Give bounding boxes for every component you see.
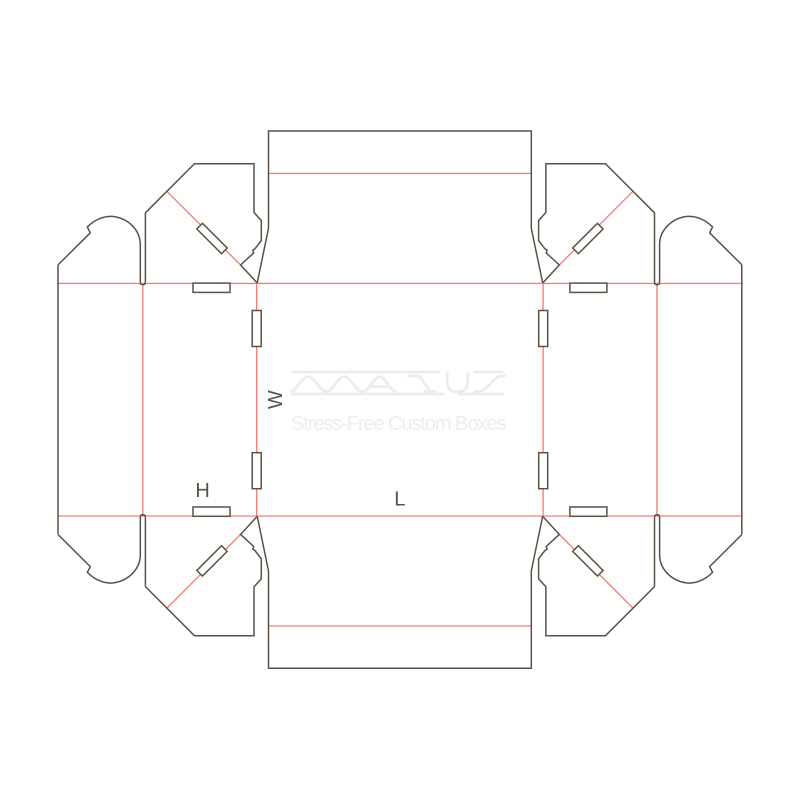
svg-text:Stress-Free Custom Boxes: Stress-Free Custom Boxes [291, 413, 507, 435]
svg-text:H: H [195, 480, 209, 502]
svg-text:W: W [265, 390, 287, 409]
svg-text:L: L [394, 489, 405, 511]
